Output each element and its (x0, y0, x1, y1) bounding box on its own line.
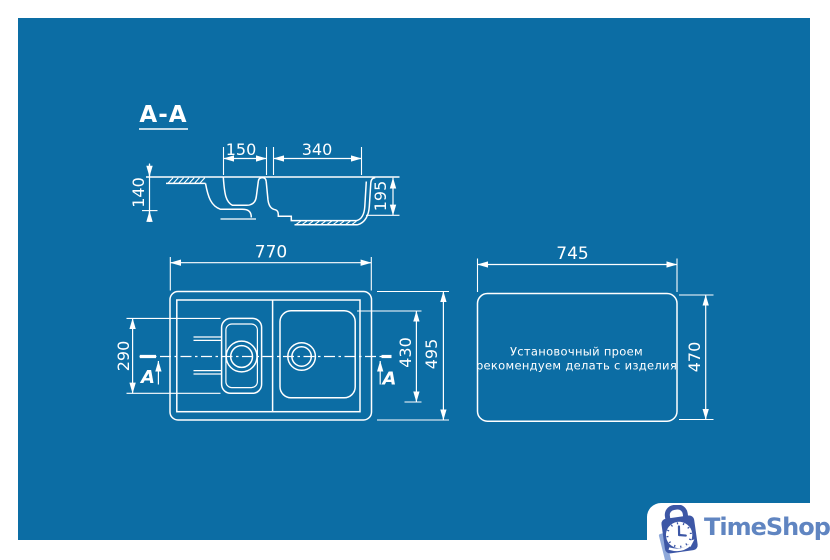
dim-745-label: 745 (556, 244, 588, 264)
cut-label-left: A (139, 367, 155, 388)
dim-140-label: 140 (129, 177, 148, 208)
clock-bag-logo-icon (655, 505, 709, 560)
dim-495-label: 495 (422, 339, 441, 370)
logo-wordmark: TimeShop (704, 513, 830, 541)
dim-150-label: 150 (226, 140, 257, 159)
watermark-logo-card: TimeShop (647, 503, 830, 560)
cut-label-right: A (381, 369, 397, 390)
technical-drawing: A-A 150 340 (0, 0, 830, 560)
dim-195-label: 195 (371, 181, 390, 212)
blueprint-page: A-A 150 340 (0, 0, 830, 560)
dim-430-label: 430 (396, 337, 415, 368)
cutout-note-line2: рекомендуем делать с изделия (476, 359, 677, 373)
dim-470-label: 470 (685, 342, 704, 373)
cutout-note-line1: Установочный проем (510, 345, 643, 359)
dim-290-label: 290 (114, 341, 133, 372)
blueprint-canvas (18, 18, 810, 540)
section-title: A-A (139, 102, 187, 128)
dim-340-label: 340 (302, 140, 333, 159)
dim-770-label: 770 (255, 243, 287, 263)
